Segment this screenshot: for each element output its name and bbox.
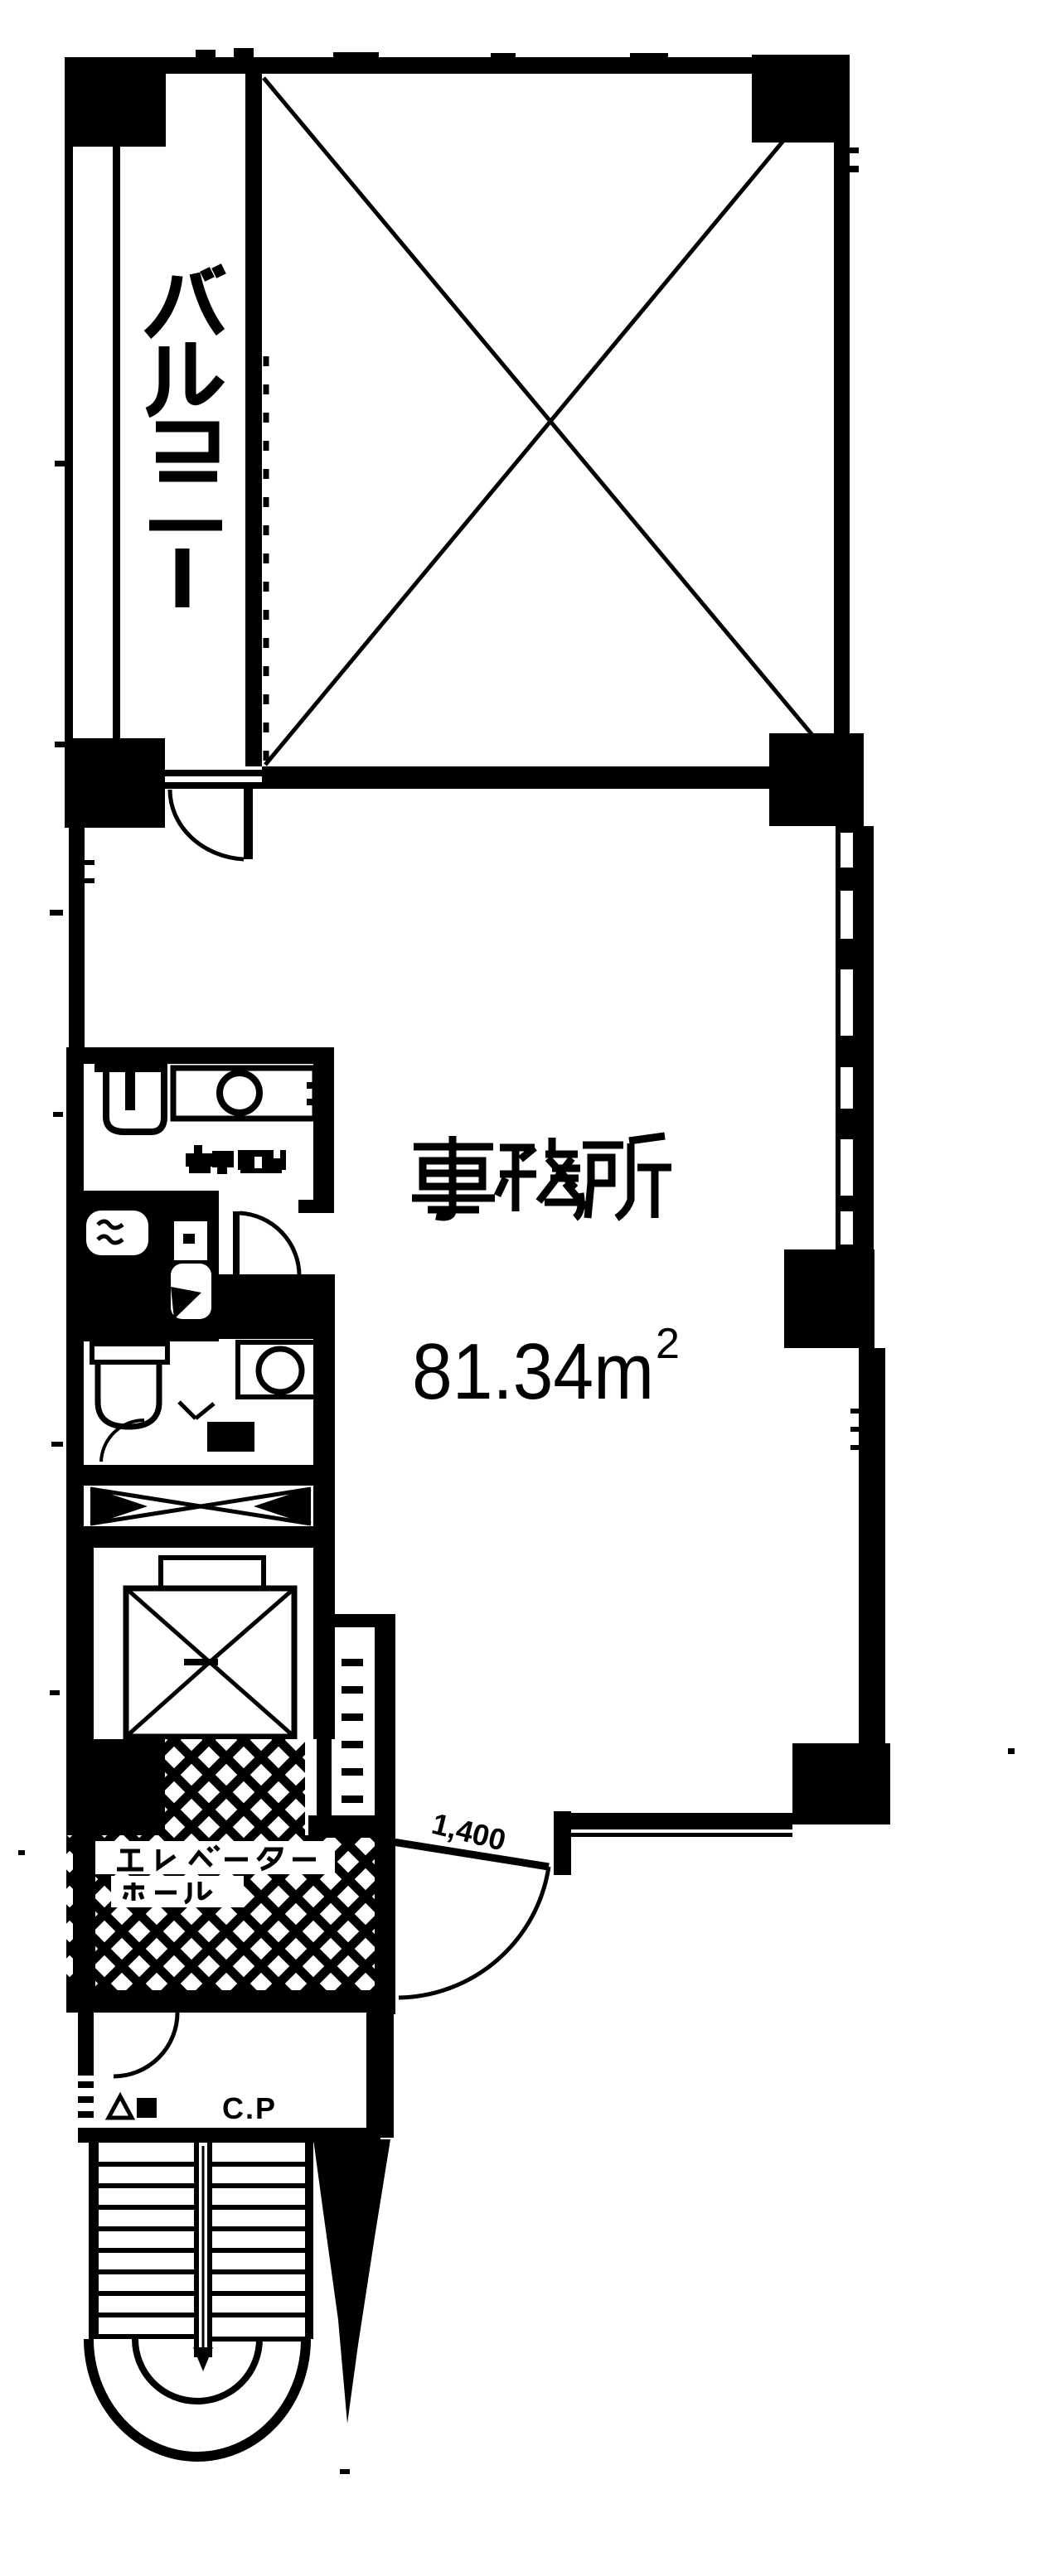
svg-text:C.P: C.P	[222, 2091, 277, 2125]
svg-text:81.34m: 81.34m	[412, 1327, 654, 1416]
svg-text:2: 2	[656, 1320, 680, 1368]
